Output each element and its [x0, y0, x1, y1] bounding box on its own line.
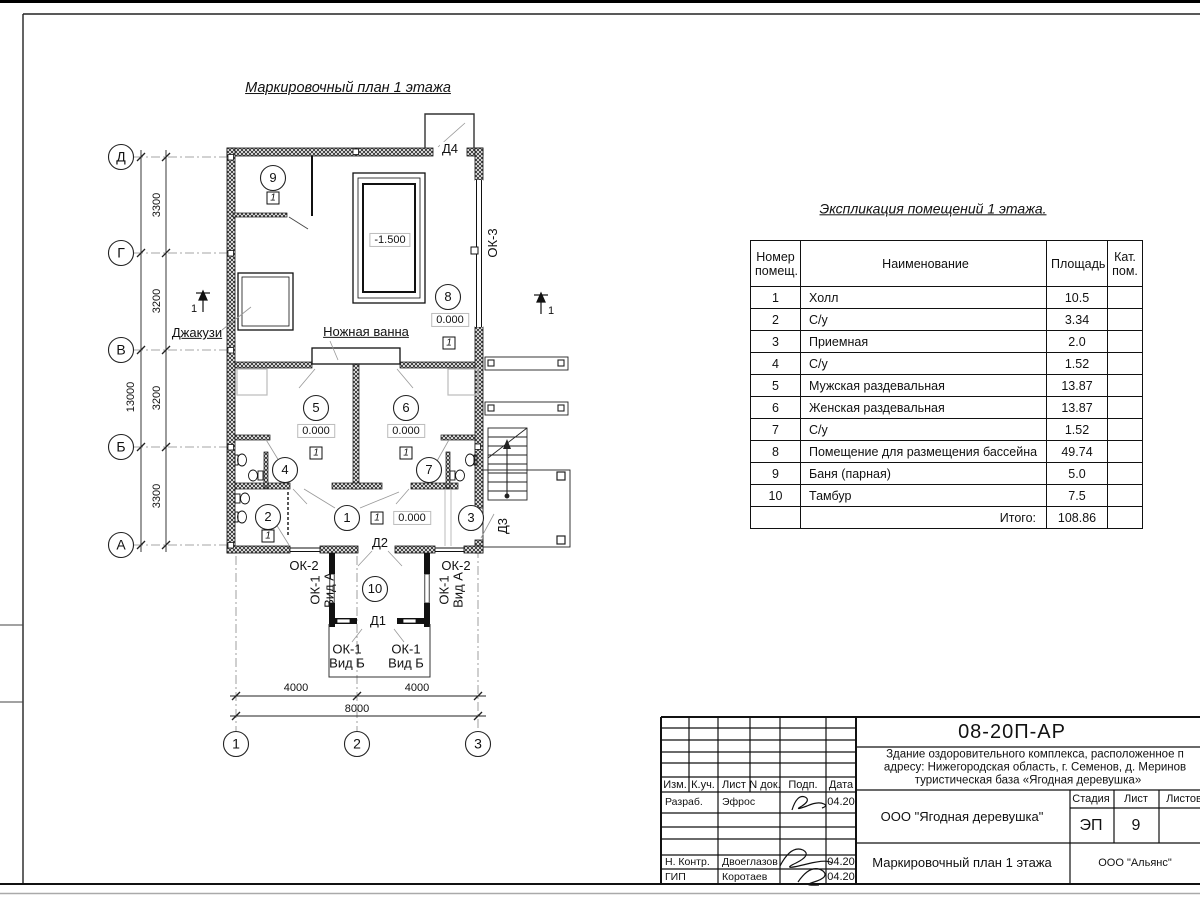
door-label-d3: Д3	[496, 518, 510, 534]
axis-letter: В	[116, 342, 125, 357]
table-cell	[1108, 397, 1143, 419]
table-cell: Баня (парная)	[801, 463, 1047, 485]
type-marker: 1	[400, 447, 413, 460]
person-name: Двоеглазов	[722, 856, 778, 868]
table-cell: Приемная	[801, 331, 1047, 353]
table-cell: 1.52	[1047, 419, 1108, 441]
window-label-ok1-vid-a: ОК-1Вид А	[279, 572, 350, 608]
person-name: Коротаев	[722, 871, 767, 883]
person-role: Разраб.	[665, 796, 703, 808]
table-cell: 49.74	[1047, 441, 1108, 463]
level-label: 0.000	[431, 313, 469, 327]
contractor-org: ООО "Альянс"	[1098, 857, 1172, 869]
room-marker: 3	[467, 511, 474, 525]
plan-title: Маркировочный план 1 этажа	[245, 81, 451, 97]
jacuzzi-label: Джакузи	[172, 326, 222, 340]
project-desc-line2: адресу: Нижегородская область, г. Семено…	[884, 762, 1186, 775]
section-mark-label: 1	[191, 303, 197, 315]
level-label: -1.500	[369, 233, 410, 247]
table-row: 6Женская раздевальная13.87	[751, 397, 1143, 419]
sink	[235, 511, 247, 523]
room-marker: 6	[402, 401, 409, 415]
table-cell: 13.87	[1047, 397, 1108, 419]
toilet	[450, 470, 465, 481]
signatures	[780, 797, 832, 886]
dim-total-label: 13000	[125, 382, 137, 413]
table-cell: 9	[751, 463, 801, 485]
type-marker: 1	[443, 337, 456, 350]
table-cell	[1108, 287, 1143, 309]
axis-letter: А	[116, 537, 125, 552]
room-marker: 5	[312, 401, 319, 415]
window-label-ok2: ОК-2	[289, 559, 318, 573]
sheets-label: Листов	[1166, 793, 1200, 805]
room-marker: 7	[425, 463, 432, 477]
table-cell: 10.5	[1047, 287, 1108, 309]
table-cell: 13.87	[1047, 375, 1108, 397]
table-cell: Тамбур	[801, 485, 1047, 507]
type-marker: 1	[371, 512, 384, 525]
header-cat: Кат. пом.	[1108, 241, 1143, 287]
person-date: 04.20	[827, 870, 855, 882]
table-cell: Холл	[801, 287, 1047, 309]
axis-number: 3	[474, 736, 482, 751]
toilet	[249, 470, 264, 481]
room-marker: 2	[264, 510, 271, 524]
table-row: 3Приемная2.0	[751, 331, 1143, 353]
room-marker: 10	[368, 582, 382, 596]
table-row: 7С/у1.52	[751, 419, 1143, 441]
table-cell: 1	[751, 287, 801, 309]
corridor-lines	[445, 489, 451, 546]
door-label-d2: Д2	[372, 536, 388, 550]
table-cell	[1108, 441, 1143, 463]
sauna-door-swing	[289, 217, 308, 229]
table-cell	[1108, 309, 1143, 331]
axis-letter: Б	[116, 439, 125, 454]
total-row: Итого: 108.86	[751, 507, 1143, 529]
room-marker: 4	[281, 463, 288, 477]
dim-total-label: 8000	[345, 703, 369, 715]
window-label-ok1-vid-a: ОК-1Вид А	[408, 572, 479, 608]
table-cell: 6	[751, 397, 801, 419]
person-date: 04.20	[827, 856, 855, 868]
project-desc-line3: туристическая база «Ягодная деревушка»	[915, 775, 1141, 788]
total-value: 108.86	[1047, 507, 1108, 529]
doc-title: Маркировочный план 1 этажа	[872, 856, 1052, 870]
doc-code: 08-20П-АР	[958, 721, 1066, 743]
table-cell	[1108, 463, 1143, 485]
table-row: 8Помещение для размещения бассейна49.74	[751, 441, 1143, 463]
dim-label: 3300	[151, 193, 163, 217]
dim-label: 3300	[151, 484, 163, 508]
table-header-row: Номер помещ. Наименование Площадь Кат. п…	[751, 241, 1143, 287]
toilet	[235, 493, 250, 504]
table-cell: Помещение для размещения бассейна	[801, 441, 1047, 463]
person-role: Н. Контр.	[665, 856, 710, 868]
person-role: ГИП	[665, 871, 686, 883]
table-row: 10Тамбур7.5	[751, 485, 1143, 507]
table-cell: 7	[751, 419, 801, 441]
project-desc-line1: Здание оздоровительного комплекса, распо…	[886, 749, 1184, 762]
type-marker: 1	[310, 447, 323, 460]
table-cell: С/у	[801, 353, 1047, 375]
table-cell: 5.0	[1047, 463, 1108, 485]
table-cell: 8	[751, 441, 801, 463]
foot-bath	[312, 348, 400, 364]
person-name: Эфрос	[722, 796, 755, 808]
door-label-d1: Д1	[370, 614, 386, 628]
table-cell: Женская раздевальная	[801, 397, 1047, 419]
sink	[235, 454, 247, 466]
table-cell: 1.52	[1047, 353, 1108, 375]
door-label-d4: Д4	[440, 142, 460, 156]
table-cell: 4	[751, 353, 801, 375]
explication-table: Номер помещ. Наименование Площадь Кат. п…	[750, 240, 1143, 529]
table-cell: 3.34	[1047, 309, 1108, 331]
dim-label: 4000	[284, 682, 308, 694]
sheet-number: 9	[1132, 817, 1141, 835]
drawing-sheet: { "plan": { "title": "Маркировочный план…	[0, 0, 1200, 900]
col-izm: Изм.	[663, 778, 687, 790]
header-name: Наименование	[801, 241, 1047, 287]
table-cell: 5	[751, 375, 801, 397]
table-row: 2С/у3.34	[751, 309, 1143, 331]
client-org: ООО "Ягодная деревушка"	[881, 810, 1044, 824]
jacuzzi	[238, 273, 293, 330]
table-cell	[1108, 419, 1143, 441]
exterior-stairs	[488, 428, 527, 500]
table-cell: 2	[751, 309, 801, 331]
table-cell: 7.5	[1047, 485, 1108, 507]
total-label: Итого:	[801, 507, 1047, 529]
table-row: 4С/у1.52	[751, 353, 1143, 375]
header-num: Номер помещ.	[751, 241, 801, 287]
table-cell	[1108, 353, 1143, 375]
table-cell: 3	[751, 331, 801, 353]
sheet-label: Лист	[1124, 793, 1148, 805]
table-cell: С/у	[801, 309, 1047, 331]
table-cell: 2.0	[1047, 331, 1108, 353]
room-marker: 9	[269, 171, 276, 185]
table-cell	[1108, 375, 1143, 397]
col-podp: Подп.	[788, 778, 817, 790]
room-marker: 8	[444, 290, 451, 304]
room-marker: 1	[343, 511, 350, 525]
table-cell	[1108, 485, 1143, 507]
window-label-ok1-vid-b: ОК-1Вид Б	[329, 613, 365, 684]
table-cell: Мужская раздевальная	[801, 375, 1047, 397]
col-data: Дата	[829, 778, 853, 790]
table-cell: 10	[751, 485, 801, 507]
header-area: Площадь	[1047, 241, 1108, 287]
axis-number: 2	[353, 736, 361, 751]
axis-letter: Д	[116, 149, 125, 164]
axis-letter: Г	[117, 245, 125, 260]
person-date: 04.20	[827, 796, 855, 808]
table-row: 1Холл10.5	[751, 287, 1143, 309]
axis-number: 1	[232, 736, 240, 751]
stage-value: ЭП	[1080, 817, 1103, 835]
table-cell: С/у	[801, 419, 1047, 441]
col-list: Лист	[722, 778, 746, 790]
table-row: 5Мужская раздевальная13.87	[751, 375, 1143, 397]
level-label: 0.000	[297, 424, 335, 438]
col-kuch: К.уч.	[691, 778, 715, 790]
col-ndok: N док.	[749, 778, 780, 790]
foot-bath-label: Ножная ванна	[323, 325, 409, 339]
exterior-walkways	[485, 357, 568, 415]
window-label-ok1-vid-b: ОК-1Вид Б	[388, 613, 424, 684]
type-marker: 1	[262, 530, 275, 543]
section-mark-label: 1	[548, 305, 554, 317]
type-marker: 1	[267, 192, 280, 205]
table-cell	[1108, 331, 1143, 353]
dim-label: 3200	[151, 386, 163, 410]
stage-label: Стадия	[1072, 793, 1110, 805]
window-label-ok3: ОК-3	[486, 228, 500, 257]
level-label: 0.000	[393, 511, 431, 525]
explication-body: 1Холл10.52С/у3.343Приемная2.04С/у1.525Му…	[751, 287, 1143, 507]
level-label: 0.000	[387, 424, 425, 438]
explication-title: Экспликация помещений 1 этажа.	[819, 201, 1046, 216]
dim-label: 3200	[151, 289, 163, 313]
table-row: 9Баня (парная)5.0	[751, 463, 1143, 485]
